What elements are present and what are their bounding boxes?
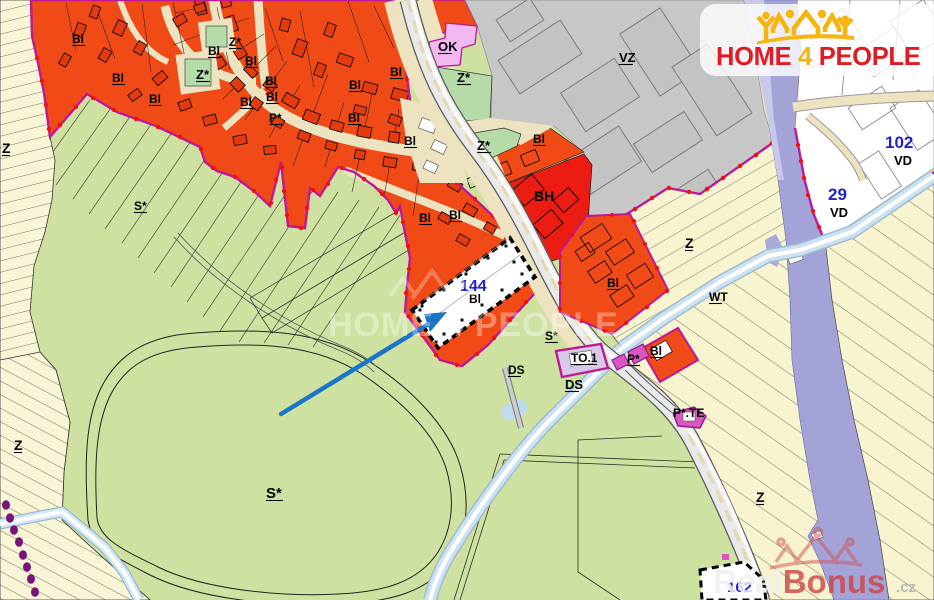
svg-text:RealBonus: RealBonus xyxy=(713,563,885,600)
svg-text:Bl: Bl xyxy=(266,90,278,104)
svg-text:OK: OK xyxy=(438,39,458,54)
svg-text:102: 102 xyxy=(885,133,913,152)
svg-text:BH: BH xyxy=(534,188,554,204)
svg-text:Bl: Bl xyxy=(404,134,416,148)
svg-text:Z*: Z* xyxy=(457,70,471,85)
svg-text:Bl: Bl xyxy=(533,132,545,146)
svg-text:Bl: Bl xyxy=(650,344,662,358)
svg-text:Bl: Bl xyxy=(208,44,220,58)
svg-text:HOME 4 PEOPLE: HOME 4 PEOPLE xyxy=(328,306,619,344)
svg-text:HOME 4 PEOPLE: HOME 4 PEOPLE xyxy=(716,43,921,71)
svg-text:P*: P* xyxy=(269,111,282,125)
svg-text:Bl: Bl xyxy=(112,71,124,85)
svg-text:P*.TE: P*.TE xyxy=(673,406,704,420)
svg-text:Z: Z xyxy=(756,489,765,505)
svg-text:Bl: Bl xyxy=(349,78,361,92)
svg-text:Z*: Z* xyxy=(477,138,491,153)
svg-text:Z*: Z* xyxy=(229,35,241,49)
svg-text:Bl: Bl xyxy=(240,95,252,109)
svg-text:P*: P* xyxy=(627,352,640,366)
svg-text:Bl: Bl xyxy=(348,111,360,125)
svg-text:.cz: .cz xyxy=(896,579,916,596)
svg-text:29: 29 xyxy=(828,185,847,204)
svg-text:S*: S* xyxy=(134,199,147,213)
svg-text:Z*: Z* xyxy=(196,67,210,82)
svg-text:Z: Z xyxy=(2,140,11,156)
svg-text:TO.1: TO.1 xyxy=(571,351,598,365)
svg-text:Bl: Bl xyxy=(245,54,257,68)
svg-text:Bl: Bl xyxy=(72,32,84,46)
svg-text:VZ: VZ xyxy=(619,50,636,65)
svg-text:WT: WT xyxy=(709,290,728,304)
svg-text:Bl: Bl xyxy=(149,92,161,106)
svg-text:Z: Z xyxy=(14,437,23,453)
svg-text:DS: DS xyxy=(565,377,583,392)
svg-text:DS: DS xyxy=(508,363,525,377)
svg-text:Z: Z xyxy=(685,235,694,251)
svg-text:Bl: Bl xyxy=(419,211,431,225)
svg-text:Bl: Bl xyxy=(390,65,402,79)
svg-text:VD: VD xyxy=(830,205,848,220)
svg-text:Bl: Bl xyxy=(449,208,461,222)
svg-text:S*: S* xyxy=(266,485,282,502)
svg-text:Bl: Bl xyxy=(607,276,619,290)
svg-text:VD: VD xyxy=(894,153,912,168)
svg-text:Bl: Bl xyxy=(265,74,277,88)
